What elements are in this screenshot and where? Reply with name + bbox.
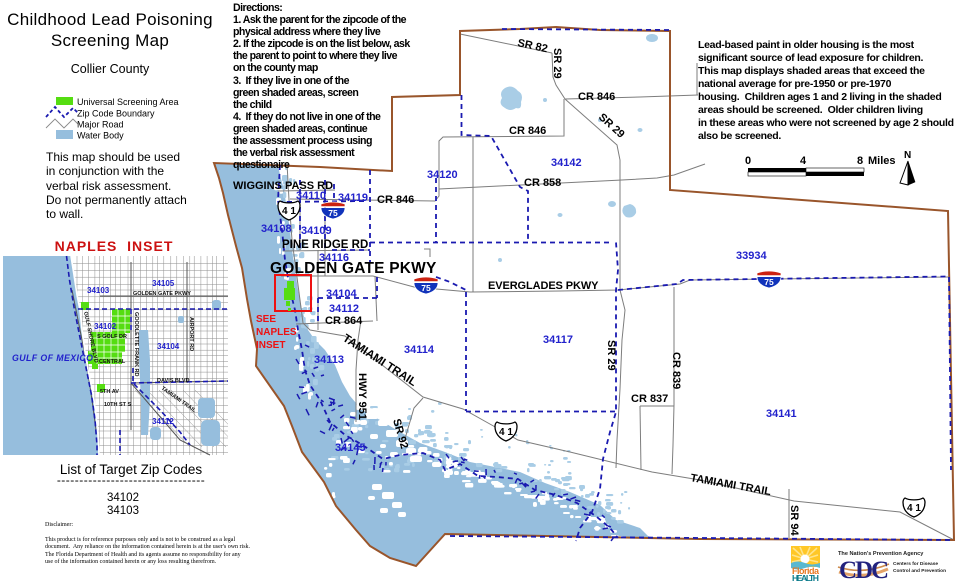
- svg-text:34112: 34112: [152, 417, 174, 426]
- svg-text:S GOLF DR: S GOLF DR: [97, 334, 127, 340]
- svg-text:Miles: Miles: [868, 155, 896, 167]
- svg-text:GOLDEN GATE PKWY: GOLDEN GATE PKWY: [133, 291, 191, 297]
- svg-text:4: 4: [800, 155, 807, 167]
- svg-text:34102: 34102: [94, 322, 117, 331]
- svg-text:GULF OF MEXICO: GULF OF MEXICO: [12, 353, 93, 363]
- svg-text:10TH ST S: 10TH ST S: [104, 402, 132, 408]
- svg-text:Control and Prevention: Control and Prevention: [893, 568, 946, 574]
- svg-text:5TH AV: 5TH AV: [100, 389, 119, 395]
- svg-text:CENTRAL: CENTRAL: [99, 359, 126, 365]
- svg-text:Centers for Disease: Centers for Disease: [893, 561, 938, 567]
- svg-text:0: 0: [745, 155, 751, 167]
- svg-text:HEALTH: HEALTH: [792, 573, 819, 582]
- svg-text:34104: 34104: [157, 342, 180, 351]
- svg-text:34105: 34105: [152, 279, 175, 288]
- svg-text:DAVIS BLVD: DAVIS BLVD: [157, 378, 190, 384]
- svg-text:N: N: [904, 150, 911, 161]
- svg-text:8: 8: [857, 155, 863, 167]
- svg-text:CDC: CDC: [839, 557, 889, 582]
- svg-text:34103: 34103: [87, 286, 110, 295]
- svg-text:AIRPORT RD: AIRPORT RD: [188, 317, 194, 351]
- svg-text:GOODLETTE FRANK RD: GOODLETTE FRANK RD: [133, 312, 139, 376]
